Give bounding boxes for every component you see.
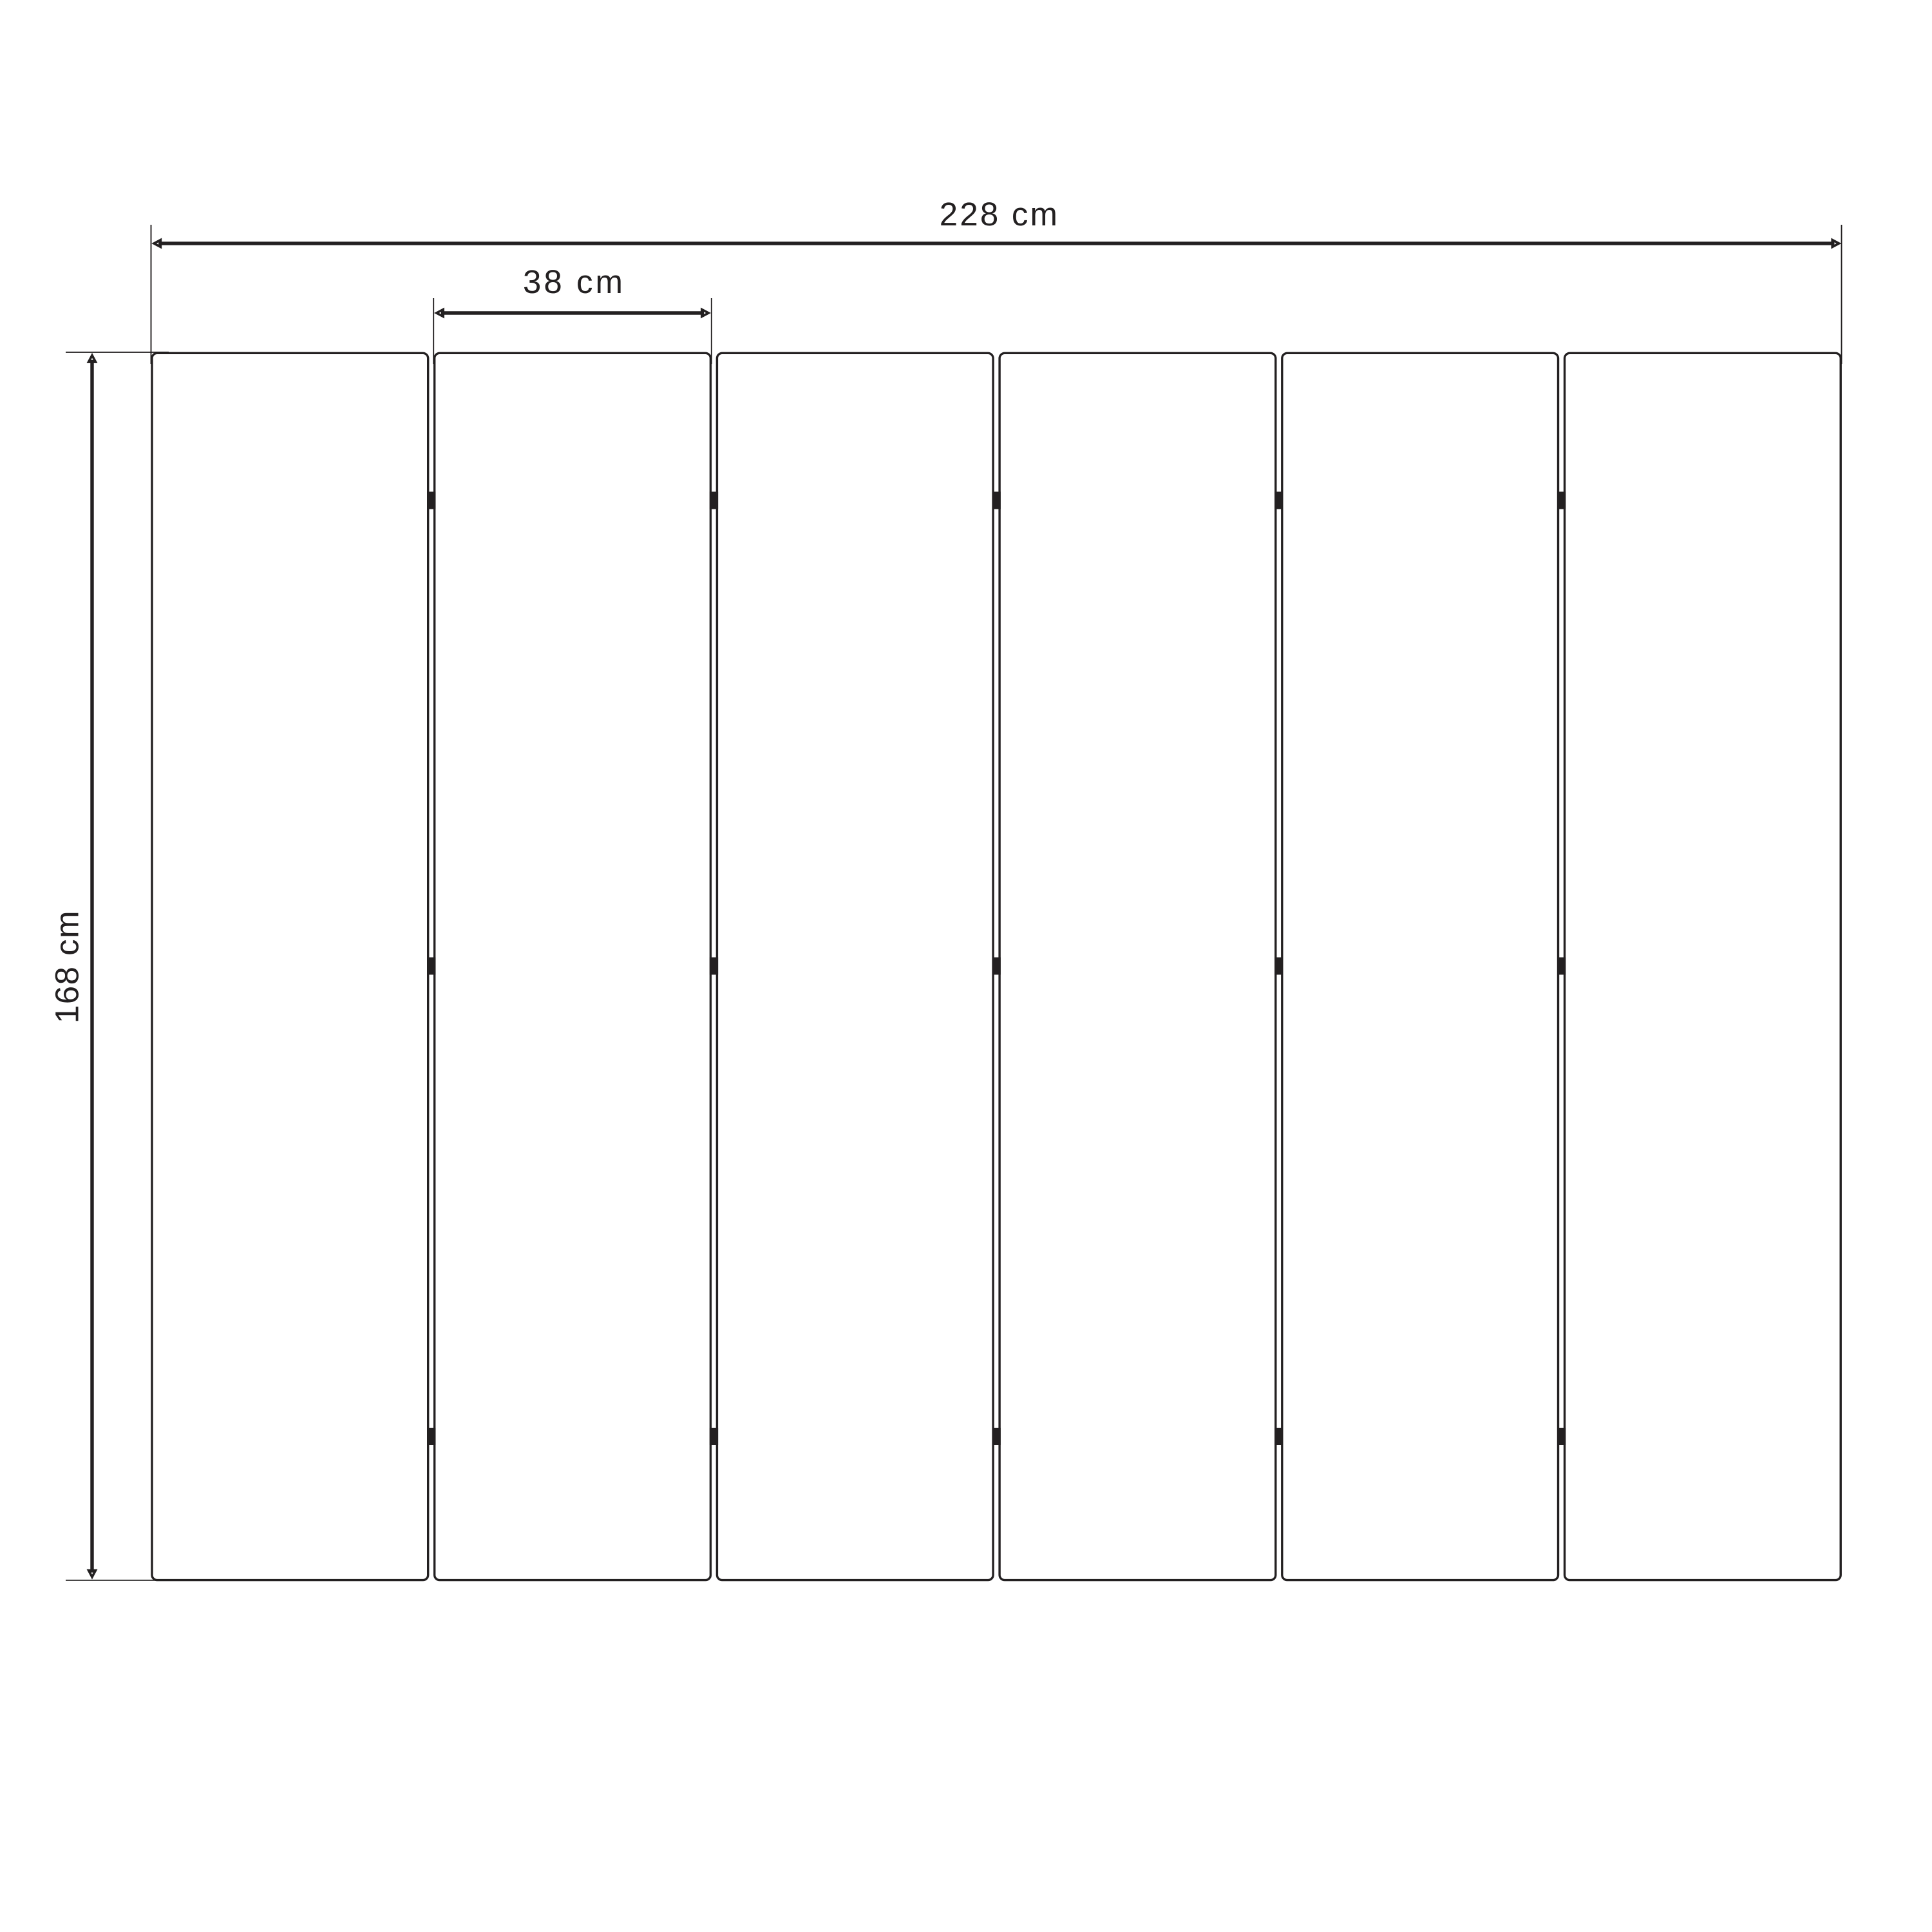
svg-text:168 cm: 168 cm xyxy=(49,910,86,1023)
svg-text:228 cm: 228 cm xyxy=(940,196,1059,232)
svg-text:38 cm: 38 cm xyxy=(523,263,625,300)
